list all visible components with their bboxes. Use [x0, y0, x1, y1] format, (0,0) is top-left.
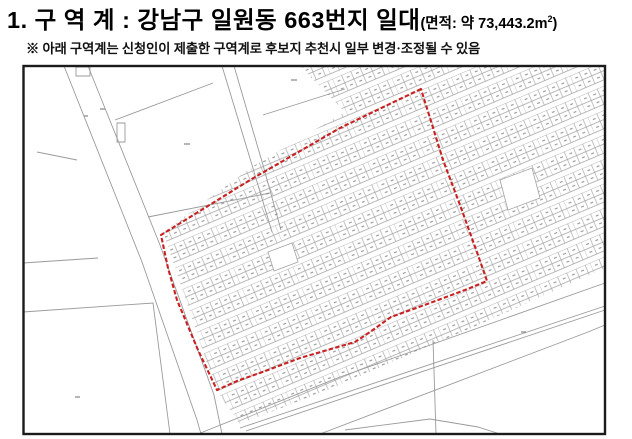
page-root: { "title": { "main": "1. 구 역 계 : 강남구 일원동…	[0, 0, 632, 439]
cadastral-map	[0, 0, 632, 439]
